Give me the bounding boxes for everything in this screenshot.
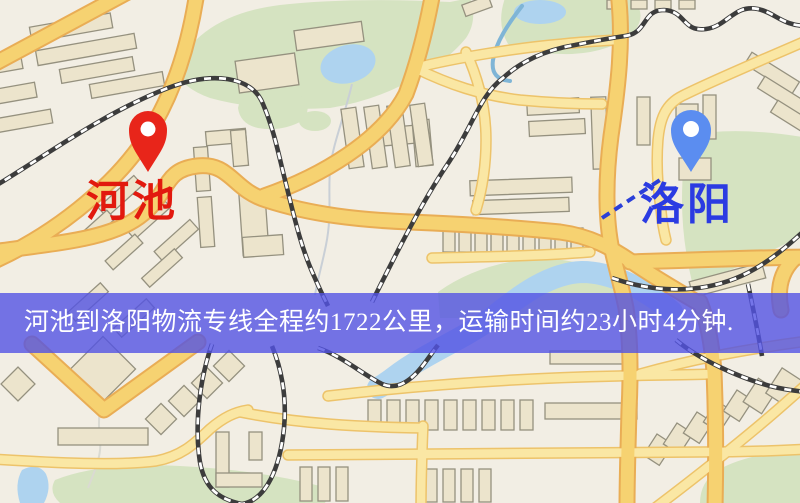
destination-label: 洛阳 <box>640 180 734 229</box>
destination-pin-hole <box>683 121 699 137</box>
route-info-banner: 河池到洛阳物流专线全程约1722公里，运输时间约23小时4分钟. <box>0 293 800 353</box>
origin-pin-hole <box>141 122 156 137</box>
logistics-map-page: 河池 洛阳 河池到洛阳物流专线全程约1722公里，运输时间约23小时4分钟. <box>0 0 800 503</box>
route-info-text: 河池到洛阳物流专线全程约1722公里，运输时间约23小时4分钟. <box>24 309 734 336</box>
map-canvas[interactable]: 河池 洛阳 <box>0 0 800 503</box>
origin-label: 河池 <box>86 178 178 226</box>
